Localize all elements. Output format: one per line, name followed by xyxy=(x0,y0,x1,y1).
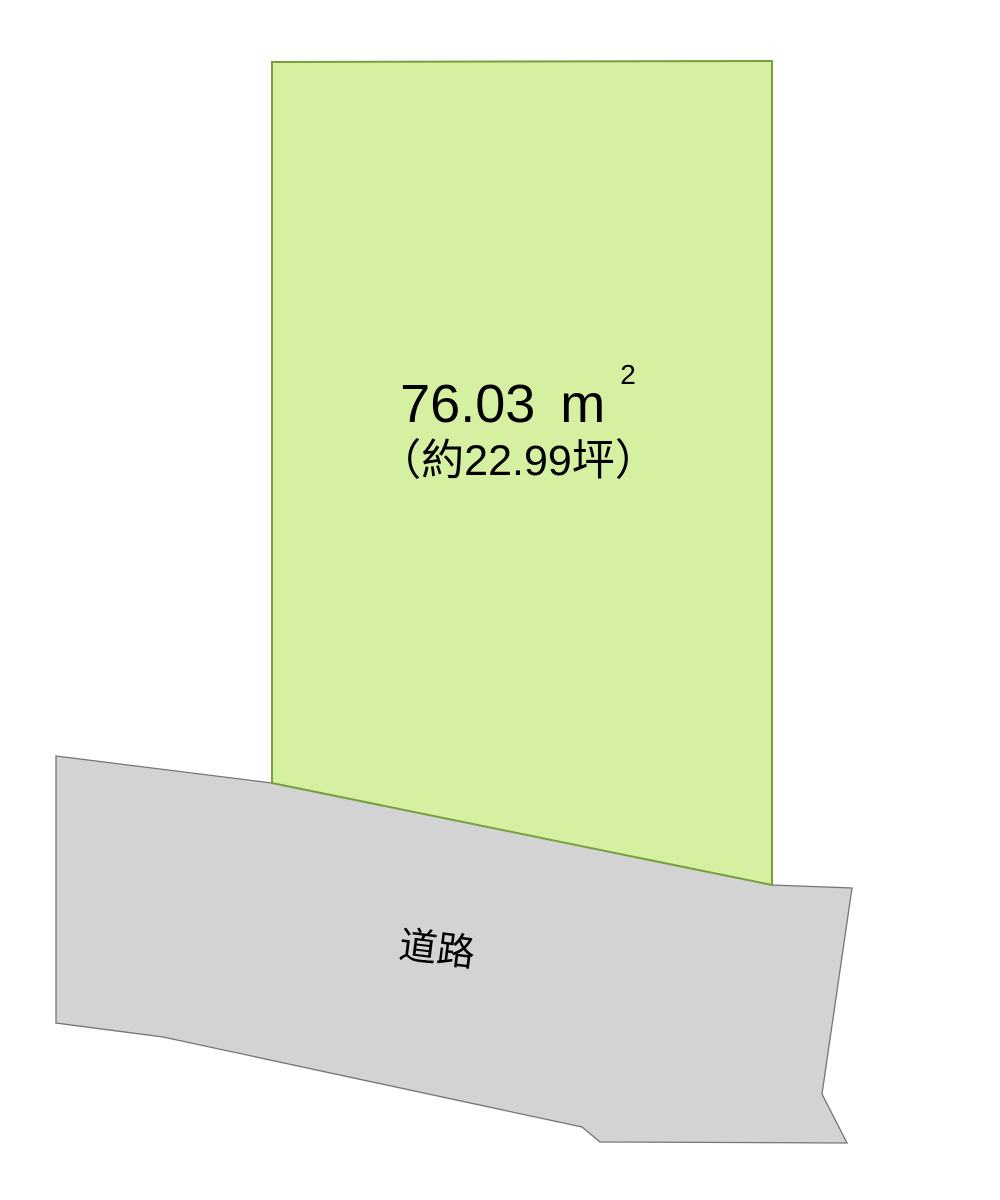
plot-area-tsubo-label: （約22.99坪） xyxy=(378,437,658,485)
lot-diagram: 76.03 m 2 （約22.99坪） 道路 xyxy=(0,0,1000,1200)
plot-area-unit: m xyxy=(560,374,605,434)
lot-diagram-svg: 76.03 m 2 （約22.99坪） 道路 xyxy=(0,0,1000,1200)
plot-area-unit-exponent: 2 xyxy=(620,359,636,390)
plot-area-value: 76.03 xyxy=(400,374,535,434)
